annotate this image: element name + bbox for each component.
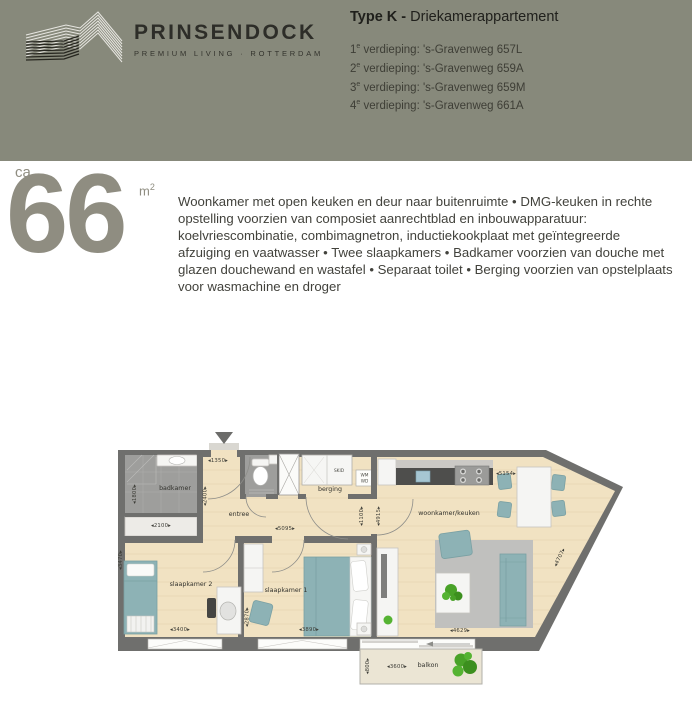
dim-3470: ◂3470▸: [118, 550, 124, 570]
apartment-description: Woonkamer met open keuken en deur naar b…: [178, 193, 675, 295]
dim-800: ◂800▸: [365, 658, 371, 675]
room-label-woonkamer: woonkamer/keuken: [418, 510, 480, 517]
brochure-page: { "brand": { "name": "PRINSENDOCK", "tag…: [0, 0, 692, 713]
room-label-badkamer: badkamer: [159, 485, 191, 492]
entrance-arrow-icon: [215, 432, 233, 444]
dim-4915: ◂4915▸: [376, 506, 382, 526]
building-lines-icon: [24, 8, 124, 66]
sideboard: [377, 548, 398, 636]
bedroom2-window: [148, 639, 222, 649]
wm-label: WM: [361, 473, 369, 479]
chair-icon: [551, 500, 566, 516]
tv-icon: [381, 554, 387, 598]
dim-1350: ◂1350▸: [208, 458, 228, 464]
type-name: Driekamerappartement: [406, 9, 558, 25]
dim-2100: ◂2100▸: [151, 523, 171, 529]
chair-icon: [497, 501, 512, 517]
page-title: Type K - Driekamerappartement: [350, 9, 680, 25]
brand-name: PRINSENDOCK: [134, 22, 323, 43]
bedroom2-bed-icon: [124, 561, 157, 634]
sofa-icon: [500, 554, 526, 626]
header-band: PRINSENDOCK PREMIUM LIVING · ROTTERDAM T…: [0, 0, 692, 161]
stove-icon: [455, 466, 489, 485]
kitchen-sink-icon: [416, 471, 430, 482]
dim-4629: ◂4629▸: [450, 628, 470, 634]
room-label-berging: berging: [318, 486, 342, 493]
skid-label: SKID: [334, 468, 345, 474]
wd-label: WD: [361, 479, 369, 485]
type-code: Type K -: [350, 9, 406, 25]
coffee-table: [436, 573, 470, 613]
dim-1800: ◂1800▸: [132, 484, 138, 504]
kitchen-counter: [378, 459, 493, 485]
type-block: Type K - Driekamerappartement 1e verdiep…: [350, 9, 680, 114]
nightstand: [357, 544, 371, 555]
small-plant-icon: [384, 616, 393, 625]
brand-tagline: PREMIUM LIVING · ROTTERDAM: [134, 49, 323, 58]
armchair-icon: [438, 530, 472, 559]
toilet-sink-icon: [269, 455, 278, 464]
dim-2870: ◂2870▸: [245, 607, 251, 627]
area-value: 66: [6, 158, 125, 270]
dim-5154: ◂5154▸: [496, 471, 516, 477]
floor-plan: SKID WM WD: [0, 430, 692, 718]
room-label-entree: entree: [229, 511, 250, 518]
dim-5095: ◂5095▸: [275, 526, 295, 532]
floor-address-2: 2e verdieping: 's-Gravenweg 659A: [350, 58, 680, 77]
washer-dryer-spot: WM WD: [356, 470, 373, 486]
desk-chair-icon: [207, 598, 216, 618]
dim-3600: ◂3600▸: [387, 664, 407, 670]
entrance-opening: [211, 450, 237, 457]
area-unit: m2: [139, 182, 155, 198]
dim-1100: ◂1100▸: [359, 506, 365, 526]
room-label-balkon: balkon: [418, 662, 439, 669]
room-label-slaapkamer2: slaapkamer 2: [170, 581, 213, 588]
room-label-slaapkamer1: slaapkamer 1: [265, 587, 308, 594]
balcony-sliding-door: [360, 639, 475, 649]
floor-address-4: 4e verdieping: 's-Gravenweg 661A: [350, 95, 680, 114]
chair-icon: [551, 474, 566, 490]
toilet-icon: [252, 459, 269, 486]
dim-3400: ◂3400▸: [170, 627, 190, 633]
floor-address-3: 3e verdieping: 's-Gravenweg 659M: [350, 77, 680, 96]
dim-3890: ◂3890▸: [299, 627, 319, 633]
shaft-icon: [279, 454, 299, 495]
skid-closet: SKID: [302, 455, 352, 485]
floor-address-1: 1e verdieping: 's-Gravenweg 657L: [350, 39, 680, 58]
washbasin-icon: [157, 455, 197, 466]
bedroom1-window: [258, 639, 347, 649]
dim-2400: ◂2400▸: [203, 486, 209, 506]
prinsendock-logo: PRINSENDOCK PREMIUM LIVING · ROTTERDAM: [24, 8, 323, 66]
nightstand: [357, 623, 371, 635]
entrance-step: [209, 443, 239, 450]
